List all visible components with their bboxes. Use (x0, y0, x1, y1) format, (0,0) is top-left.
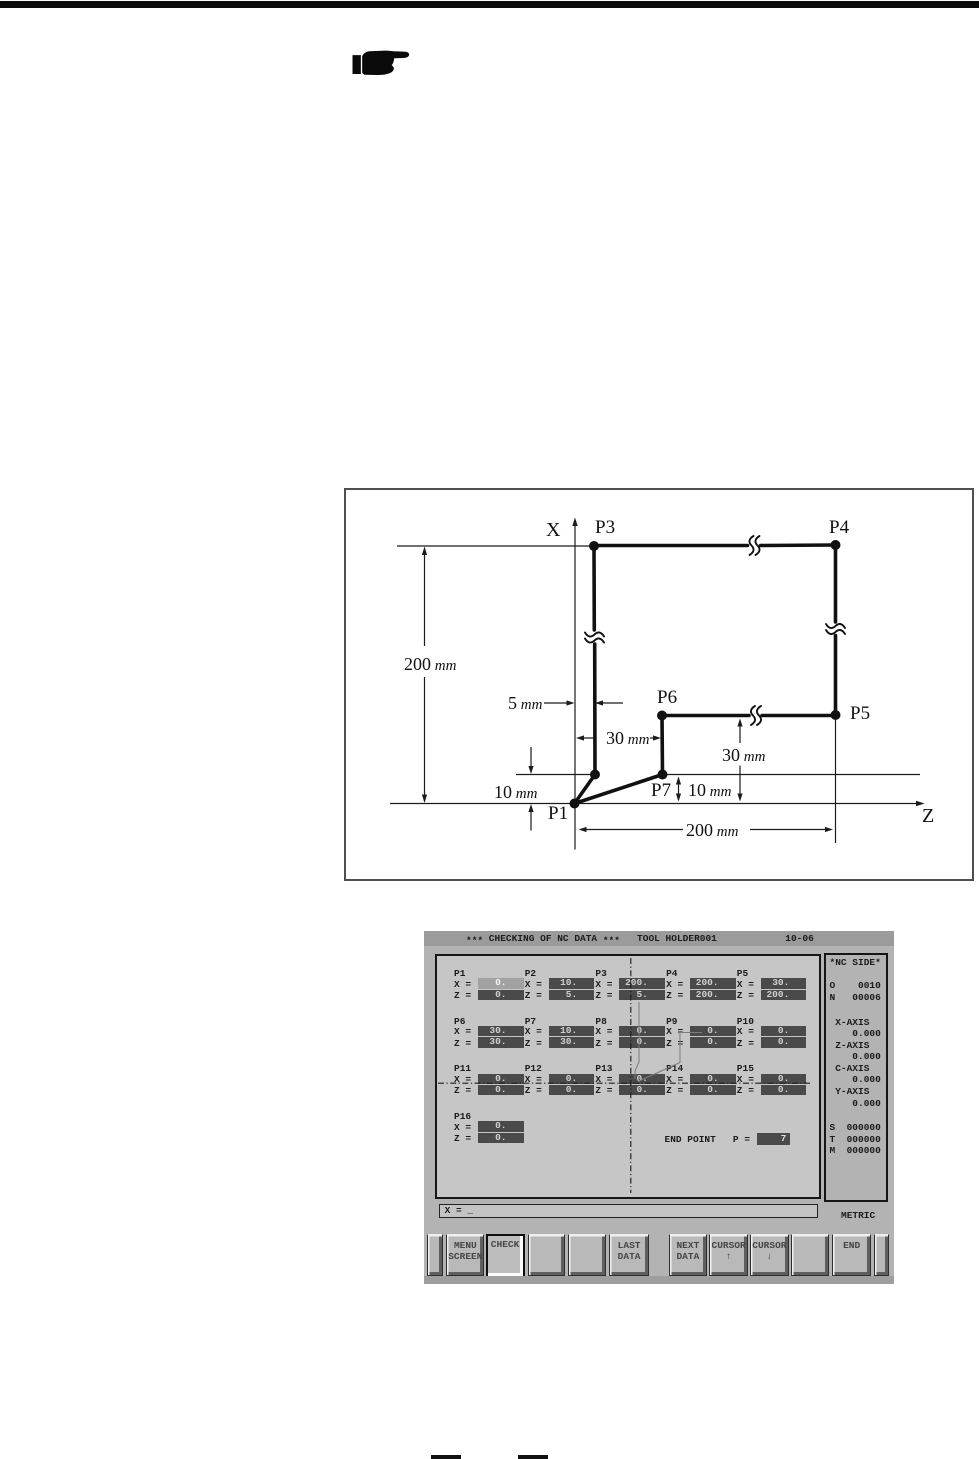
svg-text:200 mm: 200 mm (686, 820, 739, 840)
svg-text:200 mm: 200 mm (404, 654, 457, 674)
svg-text:P5: P5 (850, 703, 870, 724)
svg-text:30 mm: 30 mm (606, 728, 650, 748)
svg-text:30 mm: 30 mm (722, 745, 766, 765)
svg-text:Z: Z (922, 805, 934, 827)
svg-text:P4: P4 (829, 517, 850, 538)
svg-text:P7: P7 (651, 780, 671, 801)
svg-text:5 mm: 5 mm (508, 693, 543, 713)
svg-text:X: X (546, 519, 561, 541)
svg-text:P3: P3 (595, 517, 615, 538)
svg-text:P6: P6 (657, 687, 677, 708)
svg-text:10 mm: 10 mm (494, 782, 538, 802)
svg-text:10 mm: 10 mm (688, 780, 732, 800)
svg-text:P1: P1 (548, 803, 568, 824)
